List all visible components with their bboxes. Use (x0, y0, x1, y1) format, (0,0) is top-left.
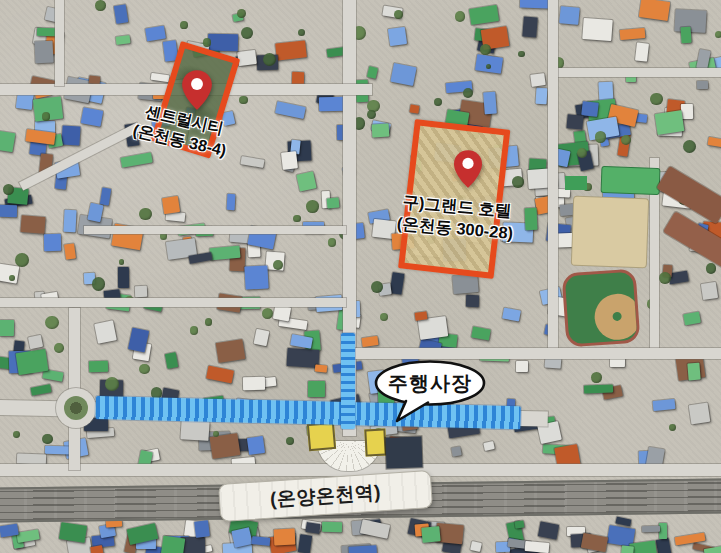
route-band-vertical (341, 333, 355, 429)
annotations-layer: 센트럴시티 (온천동 38-4) 구)그랜드 호텔 (온천동 300-28) 주… (0, 0, 721, 553)
speech-bubble: 주행사장 (371, 359, 489, 425)
satellite-map: (온양온천역) 센트럴시티 (온천동 38-4) 구)그랜드 호텔 (온천동 3… (0, 0, 721, 553)
site-label-grand-hotel: 구)그랜드 호텔 (온천동 300-28) (376, 189, 535, 246)
map-pin-icon[interactable] (180, 67, 214, 113)
map-pin-icon[interactable] (452, 147, 484, 191)
speech-bubble-text: 주행사장 (371, 370, 489, 396)
